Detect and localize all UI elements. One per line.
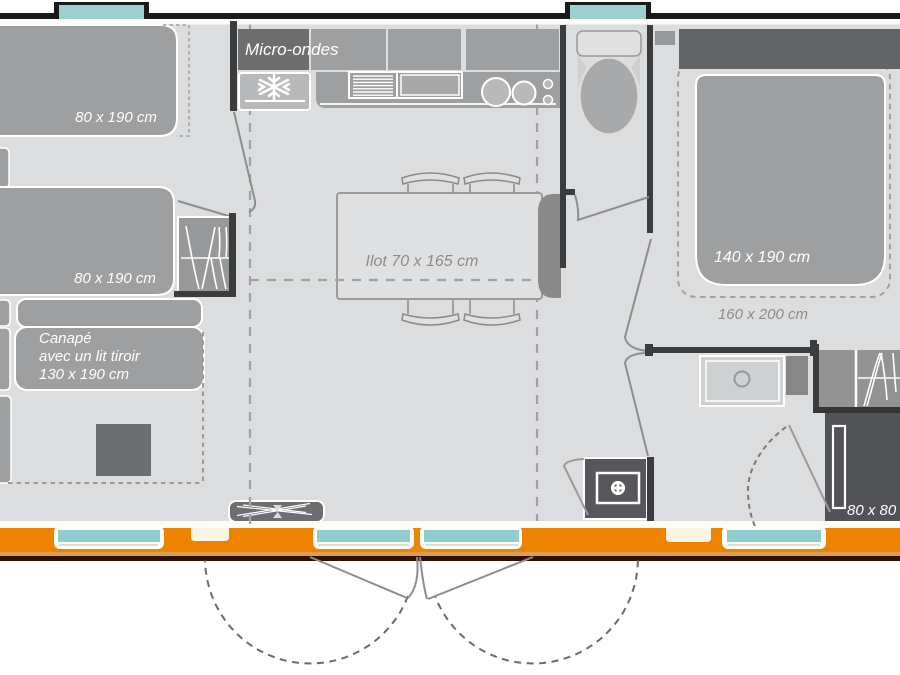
svg-text:80 x 80: 80 x 80 <box>847 502 897 519</box>
svg-text:Canapé: Canapé <box>39 330 92 347</box>
svg-text:80 x 190 cm: 80 x 190 cm <box>75 109 157 126</box>
svg-text:avec un lit tiroir: avec un lit tiroir <box>39 348 141 365</box>
svg-text:Micro-ondes: Micro-ondes <box>245 40 339 59</box>
svg-text:Ilot 70 x 165 cm: Ilot 70 x 165 cm <box>366 253 479 270</box>
svg-text:160 x 200 cm: 160 x 200 cm <box>718 306 808 323</box>
svg-text:140 x 190 cm: 140 x 190 cm <box>714 249 810 266</box>
svg-text:80 x 190 cm: 80 x 190 cm <box>74 270 156 287</box>
svg-text:130 x 190 cm: 130 x 190 cm <box>39 366 129 383</box>
